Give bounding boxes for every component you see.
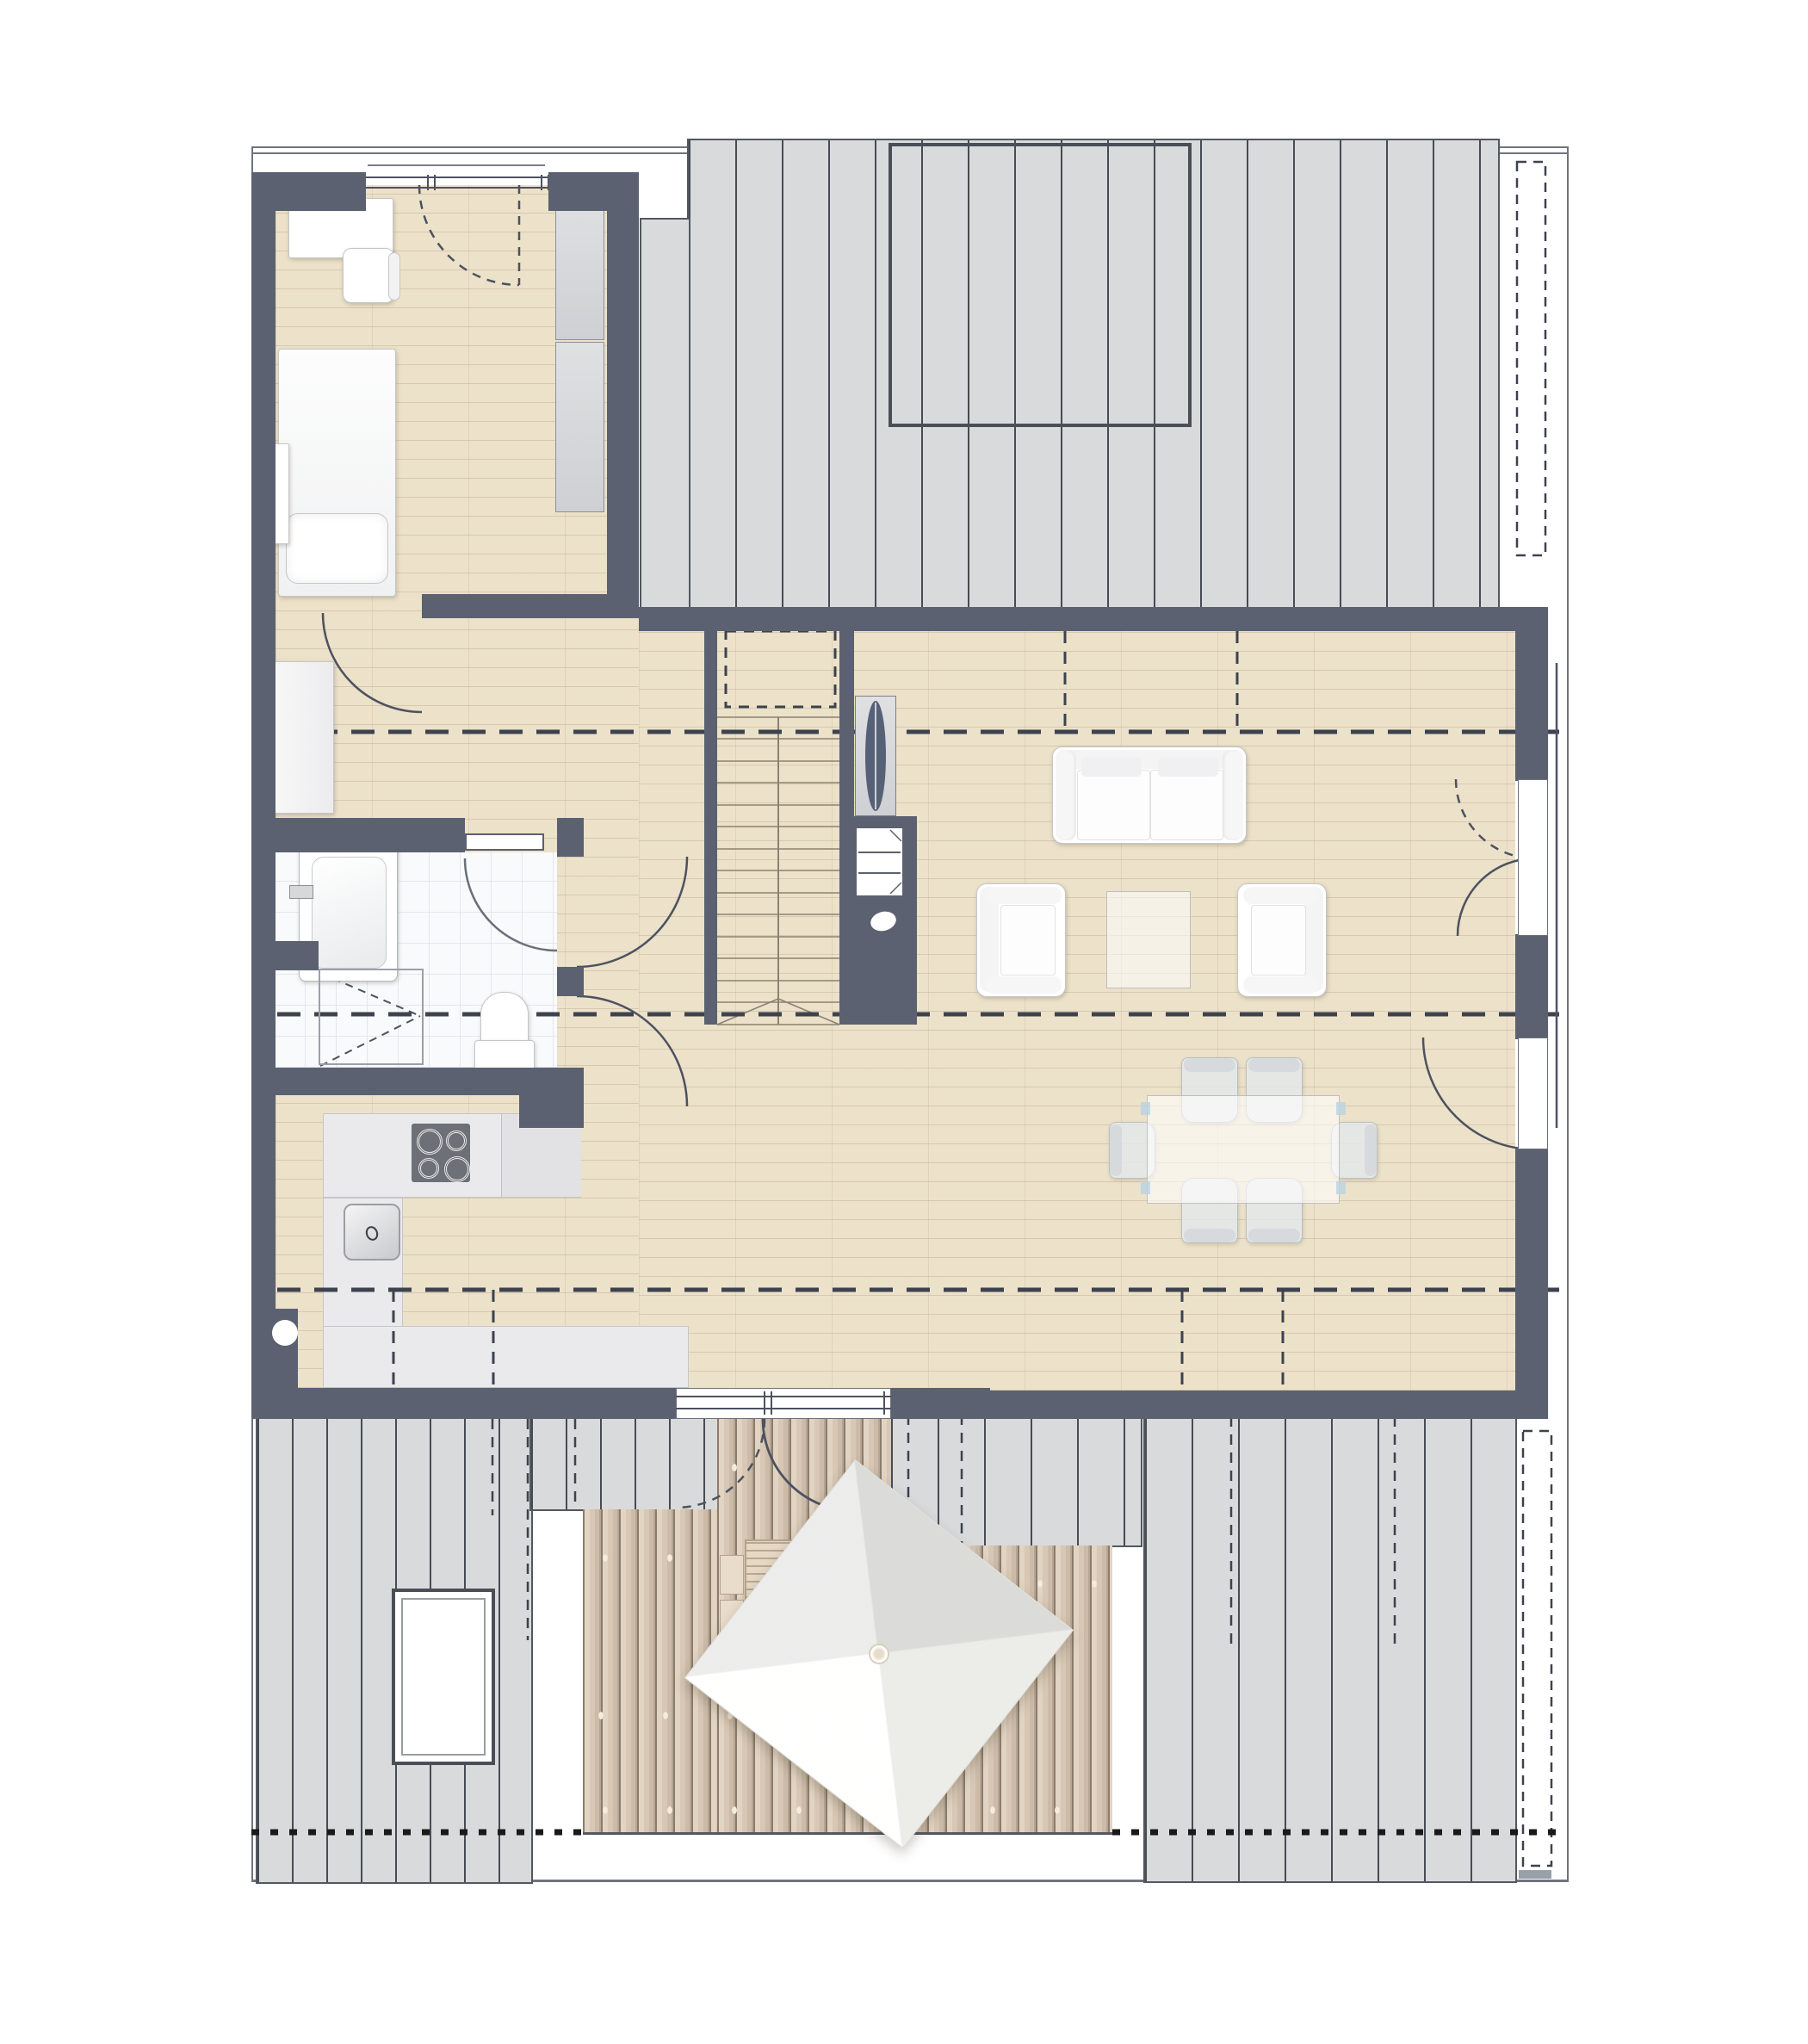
bathroom-mirror-shelf bbox=[465, 833, 544, 851]
deck-screw bbox=[732, 1806, 737, 1814]
deck-screw bbox=[603, 1554, 608, 1562]
toilet-bowl bbox=[480, 992, 529, 1047]
sofa-cushion-left bbox=[1077, 770, 1150, 840]
roof-skylight bbox=[392, 1589, 495, 1765]
armchair-left bbox=[976, 883, 1066, 997]
burner-icon bbox=[446, 1130, 467, 1151]
deck-screw bbox=[667, 1554, 672, 1562]
roof-dormer-outline bbox=[889, 143, 1192, 427]
bedroom-chair bbox=[343, 248, 394, 303]
wall-east-c bbox=[1515, 1148, 1548, 1419]
table-connector bbox=[1141, 1102, 1150, 1115]
wall-west bbox=[251, 172, 276, 1419]
wall-bath-corner-block bbox=[519, 1068, 584, 1128]
wall-hall-north bbox=[639, 607, 1548, 631]
gutter-dashed-north bbox=[1517, 162, 1545, 555]
wardrobe-lower bbox=[555, 342, 604, 512]
tub-faucet bbox=[289, 885, 313, 899]
floor-plan-canvas bbox=[0, 0, 1808, 2044]
wall-bedroom-east bbox=[607, 185, 639, 618]
roof-skylight-inner-frame bbox=[401, 1598, 486, 1756]
dining-table bbox=[1147, 1095, 1340, 1204]
kitchen-sink bbox=[344, 1204, 400, 1260]
deck-screw bbox=[732, 1464, 737, 1471]
wardrobe-upper bbox=[555, 194, 604, 340]
deck-screw bbox=[1037, 1580, 1043, 1588]
wall-north-bedroom-left bbox=[251, 172, 366, 211]
deck-screw bbox=[667, 1806, 672, 1814]
wall-bath-north-right bbox=[557, 818, 584, 857]
deck-screw bbox=[990, 1806, 995, 1814]
armchair-armrest bbox=[1243, 976, 1319, 994]
table-connector bbox=[1336, 1102, 1346, 1115]
armchair-armrest bbox=[986, 976, 1062, 994]
wall-bath-east-mid bbox=[557, 967, 584, 996]
wall-bath-south bbox=[258, 1068, 519, 1095]
burner-icon bbox=[417, 1129, 443, 1155]
sofa-cushion-right bbox=[1150, 770, 1223, 840]
deck-screw bbox=[796, 1806, 802, 1814]
kitchen-counter-bottom-arm bbox=[323, 1326, 689, 1388]
structural-column-dot bbox=[272, 1320, 298, 1346]
chair-backrest bbox=[388, 252, 400, 300]
deck-screw bbox=[1055, 1806, 1060, 1814]
sink-drain bbox=[364, 1224, 381, 1242]
armchair-armrest bbox=[986, 887, 1062, 904]
wall-south-left bbox=[251, 1388, 676, 1419]
wall-stair-left bbox=[704, 631, 717, 1025]
wall-south-mid bbox=[891, 1388, 990, 1419]
french-door-panel bbox=[1518, 779, 1548, 936]
sofa-armrest-right bbox=[1223, 750, 1243, 840]
cooktop bbox=[412, 1124, 470, 1182]
armchair-right bbox=[1237, 883, 1327, 997]
terrace-door-band bbox=[676, 1388, 891, 1419]
deck-screw bbox=[663, 1712, 668, 1719]
parasol-center-knob bbox=[864, 1639, 894, 1669]
wall-bath-north-left bbox=[274, 818, 465, 852]
chair-backrest bbox=[1248, 1058, 1300, 1072]
roof-southeast bbox=[1145, 1416, 1515, 1881]
bathtub-inner bbox=[312, 857, 387, 969]
site-edge-right bbox=[1567, 146, 1569, 1882]
chair-backrest bbox=[1184, 1058, 1235, 1072]
shower-area bbox=[319, 969, 424, 1065]
table-connector bbox=[1141, 1181, 1150, 1194]
burner-icon bbox=[444, 1156, 470, 1182]
deck-screw bbox=[1092, 1580, 1097, 1588]
armchair-seat bbox=[1000, 905, 1056, 976]
chair-backrest bbox=[1248, 1229, 1300, 1242]
chair-backrest bbox=[1184, 1229, 1235, 1242]
table-connector bbox=[1336, 1181, 1346, 1194]
bed-pillow bbox=[286, 513, 388, 584]
wall-east-b bbox=[1515, 934, 1548, 1039]
roof-southwest-extension bbox=[531, 1419, 717, 1509]
fireplace-niche bbox=[857, 828, 902, 895]
gutter-dashed-south bbox=[1523, 1431, 1551, 1866]
wall-east-a bbox=[1515, 631, 1548, 781]
deck-screw bbox=[603, 1806, 608, 1814]
wall-bedroom-south bbox=[422, 594, 639, 618]
radiator-panel bbox=[855, 696, 896, 816]
sofa-pillow bbox=[1081, 758, 1142, 777]
garden-bench bbox=[720, 1555, 744, 1595]
gutter-bar-southeast bbox=[1519, 1870, 1551, 1879]
chair-backrest bbox=[1110, 1124, 1122, 1176]
armchair-armrest bbox=[1243, 887, 1319, 904]
chair-backrest bbox=[1365, 1124, 1377, 1176]
wall-south-right bbox=[990, 1391, 1548, 1419]
deck-screw bbox=[598, 1712, 604, 1719]
roof-north-sliver bbox=[641, 220, 689, 611]
coffee-table bbox=[1106, 891, 1191, 988]
wall-bath-niche bbox=[258, 941, 319, 970]
east-door-2-panel bbox=[1518, 1037, 1548, 1149]
sofa-armrest-left bbox=[1056, 750, 1076, 840]
armchair-seat bbox=[1251, 905, 1306, 976]
sofa-pillow bbox=[1158, 758, 1218, 777]
sofa bbox=[1052, 746, 1247, 844]
floor-living-dining bbox=[639, 631, 1515, 1391]
burner-icon bbox=[418, 1158, 439, 1179]
